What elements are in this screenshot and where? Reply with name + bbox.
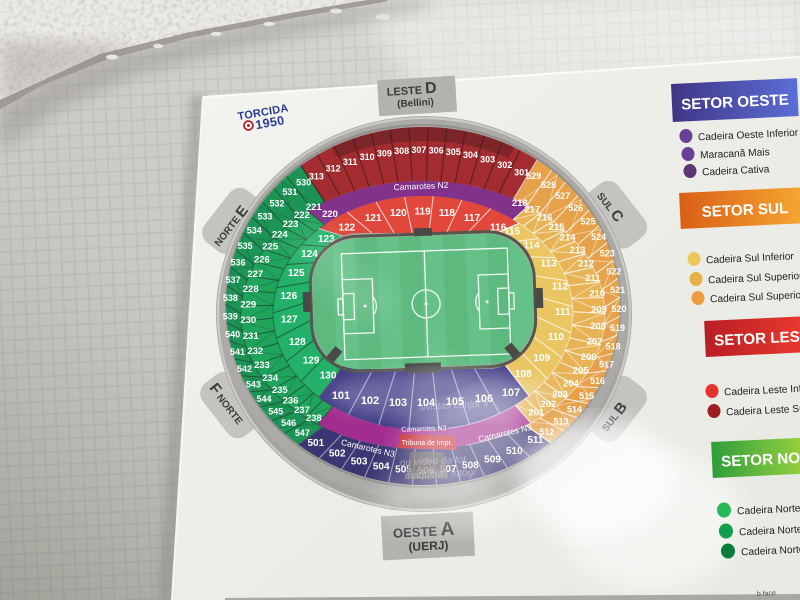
svg-text:(Bellini): (Bellini) xyxy=(397,97,434,110)
svg-text:(UERJ): (UERJ) xyxy=(408,538,449,554)
svg-text:b.face: b.face xyxy=(757,590,777,598)
